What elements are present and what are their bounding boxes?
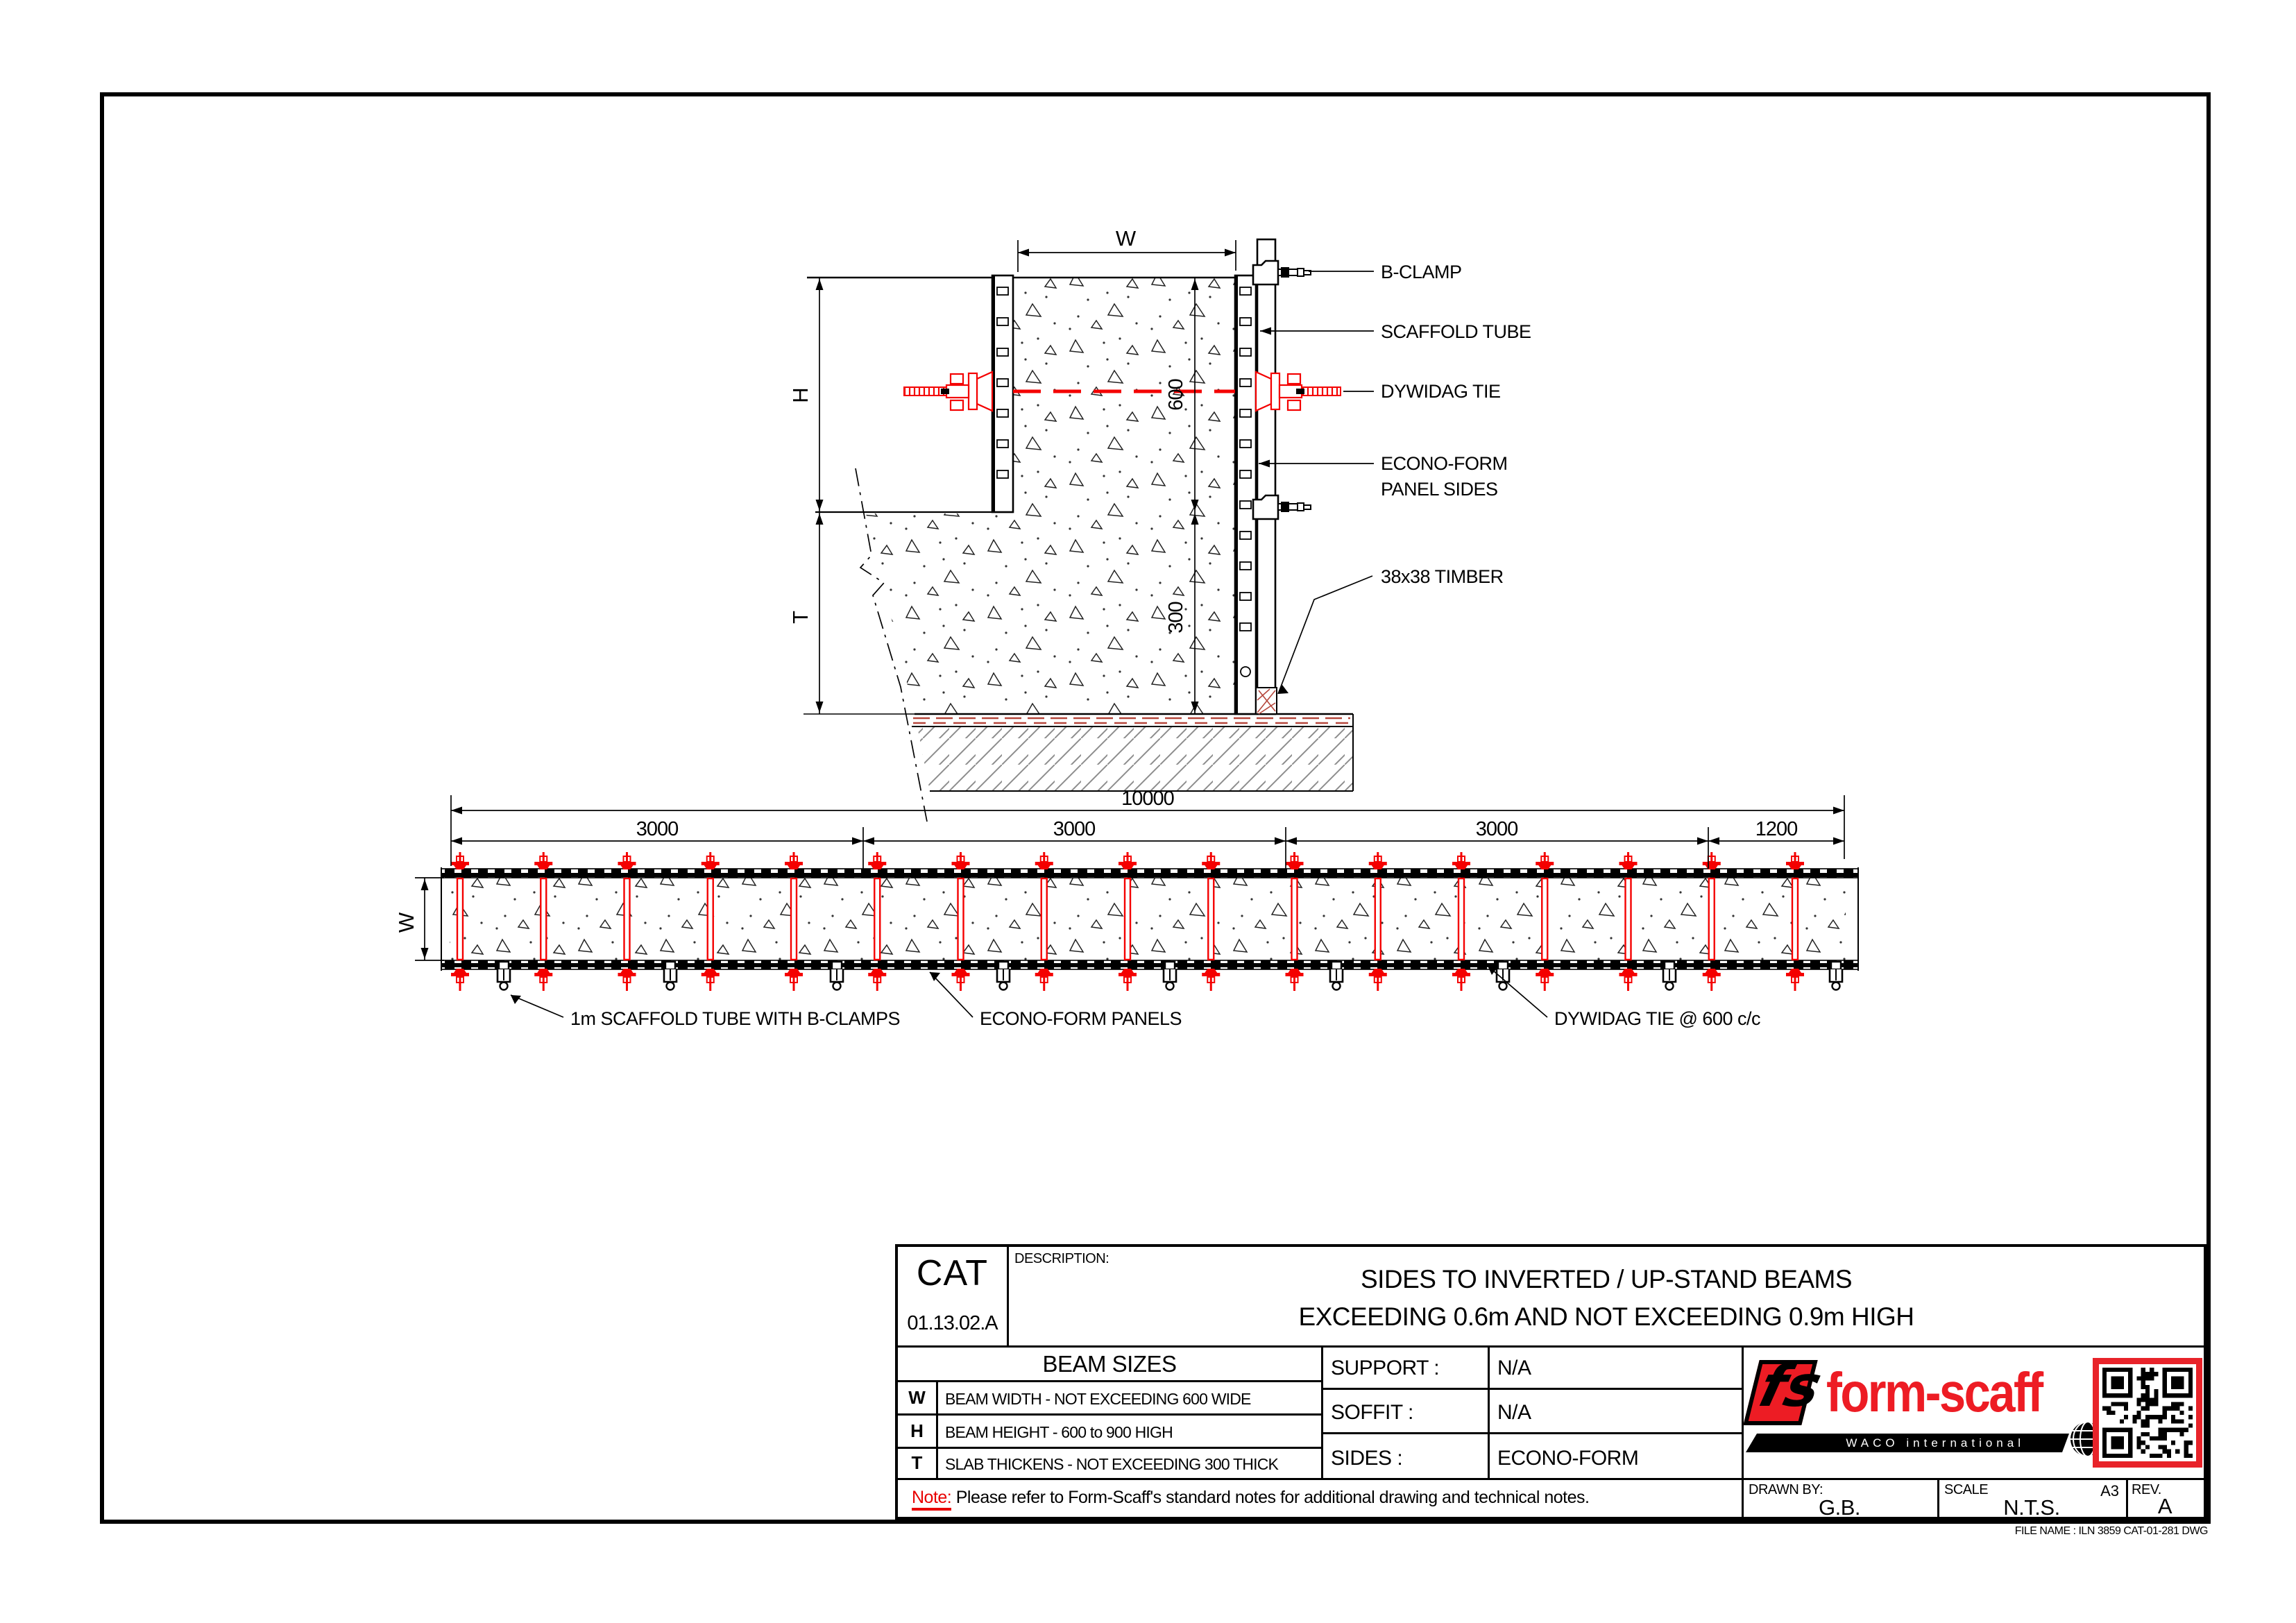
note-row: Note: Please refer to Form-Scaff's stand… bbox=[912, 1488, 1589, 1508]
file-name: FILE NAME : ILN 3859 CAT-01-281 DWG bbox=[1943, 1525, 2208, 1538]
plan-dim-seg4: 1200 bbox=[1755, 818, 1798, 840]
beam-row-desc-w: BEAM WIDTH - NOT EXCEEDING 600 WIDE bbox=[945, 1390, 1251, 1409]
plan-b-clamp bbox=[997, 962, 1010, 990]
plan-b-clamp bbox=[1330, 962, 1343, 990]
form-scaff-emblem: fs bbox=[1743, 1360, 1817, 1425]
beam-row-key-t: T bbox=[898, 1452, 936, 1474]
waco-text: WACO international bbox=[1846, 1436, 2025, 1450]
form-scaff-wordmark: form-scaff bbox=[1826, 1361, 2042, 1425]
b-clamp-top bbox=[1253, 261, 1311, 284]
plan-rail-top bbox=[441, 869, 1858, 878]
drawing-title-line1: SIDES TO INVERTED / UP-STAND BEAMS bbox=[1009, 1265, 2204, 1294]
dim-w: W bbox=[1116, 226, 1137, 250]
waco-banner: WACO international bbox=[1746, 1434, 2069, 1452]
note-text: Please refer to Form-Scaff's standard no… bbox=[951, 1488, 1589, 1507]
beam-sizes-header: BEAM SIZES bbox=[898, 1351, 1321, 1377]
plan-b-clamp bbox=[498, 962, 510, 990]
note-label: Note: bbox=[912, 1488, 951, 1511]
cat-number: 01.13.02.A bbox=[898, 1312, 1007, 1335]
drawing-sheet: W H T 600 300 B-CLAMP SCAFFOLD TUBE DYWI… bbox=[0, 0, 2296, 1623]
cat-label: CAT bbox=[898, 1252, 1007, 1294]
beam-row-desc-t: SLAB THICKENS - NOT EXCEEDING 300 THICK bbox=[945, 1455, 1278, 1474]
dim-t: T bbox=[788, 611, 813, 624]
beam-row-key-w: W bbox=[898, 1387, 936, 1409]
cross-section-drawing: W H T 600 300 B-CLAMP SCAFFOLD TUBE DYWI… bbox=[788, 226, 1531, 822]
b-clamp-mid bbox=[1253, 495, 1311, 519]
plan-b-clamp bbox=[1164, 962, 1176, 990]
label-dywidag-tie: DYWIDAG TIE bbox=[1381, 381, 1501, 402]
dim-300: 300 bbox=[1165, 602, 1187, 633]
drawn-by-value: G.B. bbox=[1742, 1495, 1937, 1520]
label-scaffold-tube: SCAFFOLD TUBE bbox=[1381, 321, 1531, 342]
dim-h: H bbox=[788, 388, 813, 402]
label-panel-sides-1: ECONO-FORM bbox=[1381, 453, 1507, 474]
rev-value: A bbox=[2126, 1494, 2204, 1519]
concrete-body bbox=[866, 278, 1235, 714]
scale-value: N.T.S. bbox=[1937, 1495, 2126, 1520]
econo-form-panel-right bbox=[1235, 275, 1256, 714]
plan-label-tube: 1m SCAFFOLD TUBE WITH B-CLAMPS bbox=[570, 1008, 900, 1029]
timber-38x38 bbox=[1256, 688, 1277, 714]
plan-rail-bottom bbox=[441, 960, 1858, 969]
plan-label-tie: DYWIDAG TIE @ 600 c/c bbox=[1554, 1008, 1760, 1029]
plan-label-panels: ECONO-FORM PANELS bbox=[980, 1008, 1182, 1029]
plan-b-clamp bbox=[1663, 962, 1676, 990]
plan-b-clamp bbox=[1830, 962, 1842, 990]
dim-600: 600 bbox=[1165, 379, 1187, 410]
plan-dim-seg2: 3000 bbox=[1053, 818, 1096, 840]
plan-dim-seg3: 3000 bbox=[1476, 818, 1518, 840]
plan-view-drawing: 10000 3000 3000 3000 1200 W 1m SCAFFOLD … bbox=[394, 788, 1858, 1029]
soffit-value: N/A bbox=[1497, 1401, 1531, 1425]
ground-bed bbox=[912, 714, 1353, 791]
sides-label: SIDES : bbox=[1331, 1447, 1402, 1470]
beam-row-desc-h: BEAM HEIGHT - 600 to 900 HIGH bbox=[945, 1423, 1173, 1442]
support-value: N/A bbox=[1497, 1357, 1531, 1380]
plan-concrete bbox=[450, 878, 1846, 960]
qr-code bbox=[2093, 1358, 2202, 1468]
plan-dim-seg1: 3000 bbox=[636, 818, 679, 840]
fs-monogram: fs bbox=[1753, 1356, 1828, 1418]
beam-row-key-h: H bbox=[898, 1420, 936, 1442]
plan-dim-w: W bbox=[394, 912, 418, 933]
scaffold-tube bbox=[1257, 239, 1275, 714]
label-timber: 38x38 TIMBER bbox=[1381, 566, 1504, 587]
econo-form-panel-left bbox=[992, 275, 1013, 512]
sides-value: ECONO-FORM bbox=[1497, 1447, 1638, 1470]
plan-dim-overall: 10000 bbox=[1121, 788, 1174, 810]
plan-b-clamp bbox=[664, 962, 677, 990]
label-b-clamp: B-CLAMP bbox=[1381, 262, 1462, 282]
plan-b-clamp bbox=[831, 962, 843, 990]
label-panel-sides-2: PANEL SIDES bbox=[1381, 479, 1498, 500]
support-label: SUPPORT : bbox=[1331, 1357, 1439, 1380]
title-block: CAT 01.13.02.A DESCRIPTION: SIDES TO INV… bbox=[895, 1244, 2206, 1520]
drawing-title-line2: EXCEEDING 0.6m AND NOT EXCEEDING 0.9m HI… bbox=[1009, 1302, 2204, 1332]
soffit-label: SOFFIT : bbox=[1331, 1401, 1413, 1425]
